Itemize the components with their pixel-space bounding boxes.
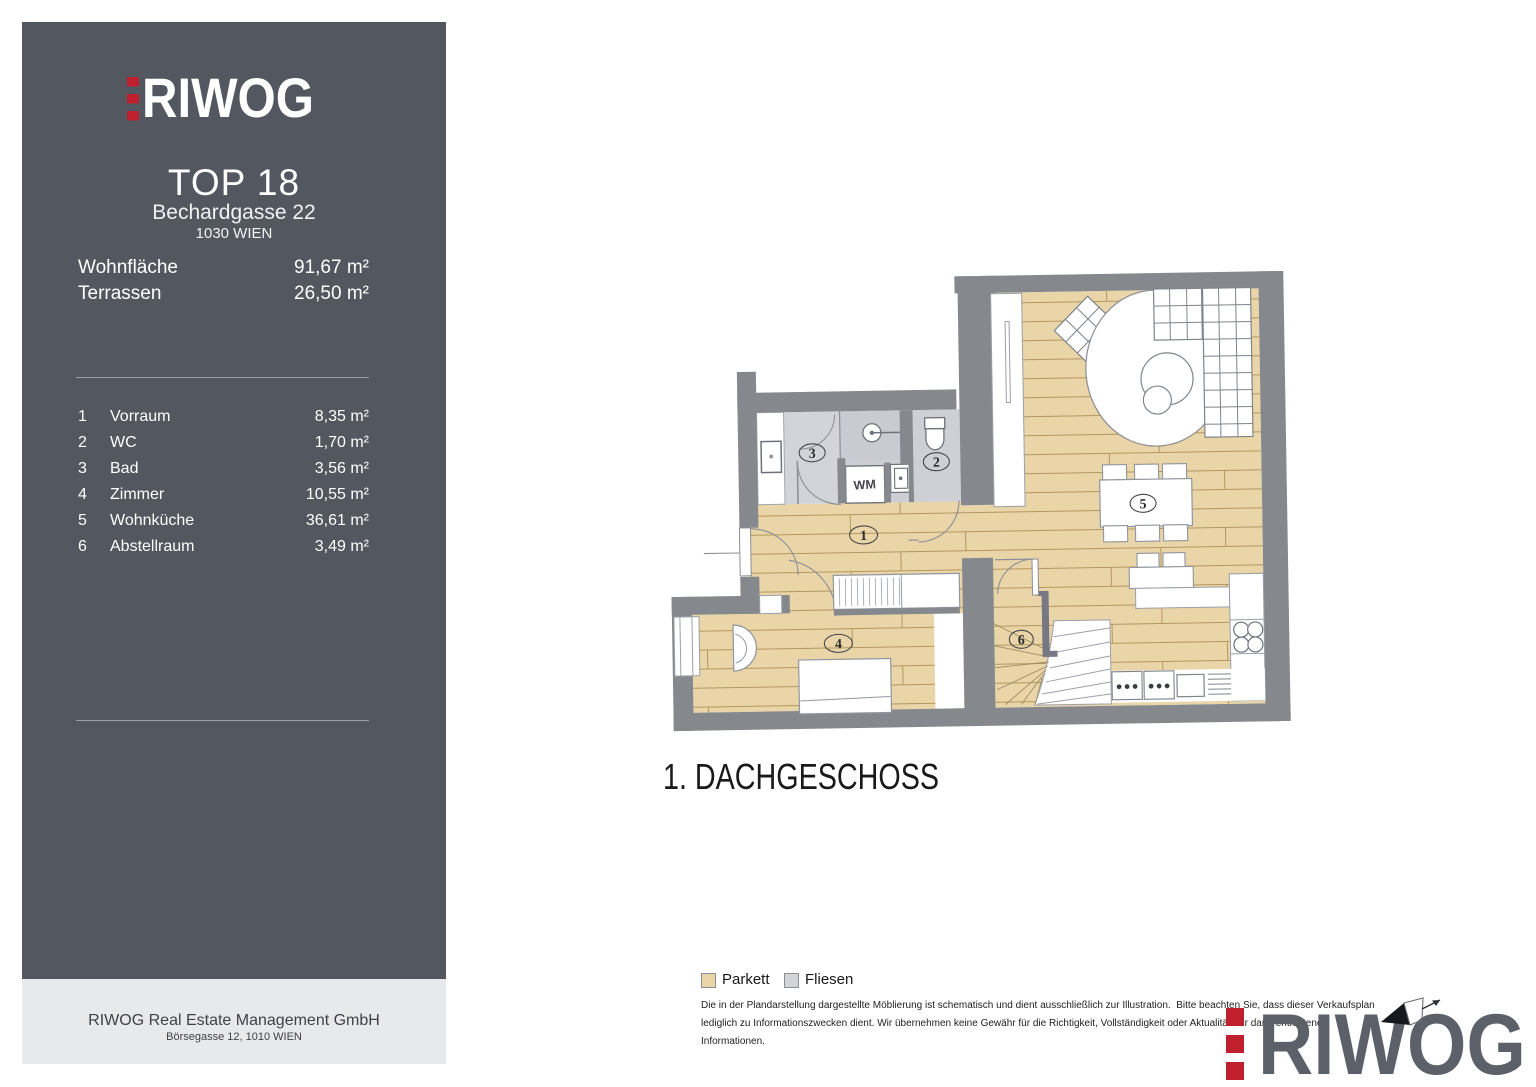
svg-text:4: 4 — [835, 637, 842, 652]
svg-text:1: 1 — [860, 529, 867, 544]
svg-text:6: 6 — [1018, 633, 1025, 648]
svg-text:3: 3 — [809, 447, 816, 462]
svg-text:WM: WM — [853, 477, 876, 492]
svg-text:5: 5 — [1139, 497, 1146, 512]
svg-text:2: 2 — [933, 456, 940, 471]
